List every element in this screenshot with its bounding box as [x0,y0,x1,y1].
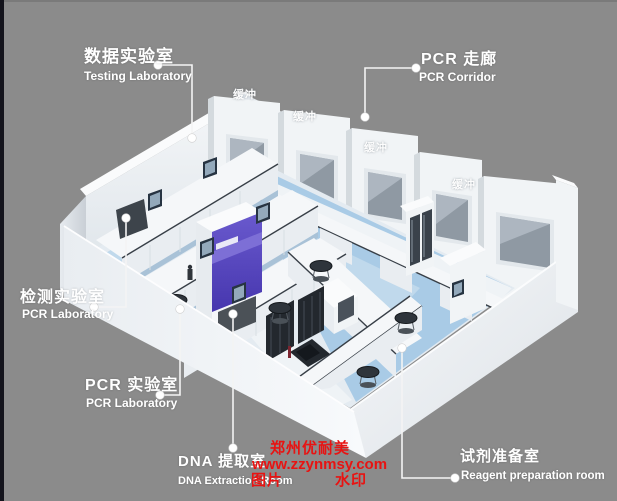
person-figure [188,265,193,280]
label-reagent-prep-en: Reagent preparation room [461,471,605,483]
left-border-strip [0,0,4,501]
buffer-tag-1: 缓冲 [233,86,257,102]
lab-floorplan-scene: 数据实验室 Testing Laboratory PCR 走廊 PCR Corr… [0,0,617,501]
label-pcr-corridor-zh: PCR 走廊 [421,52,497,68]
label-testing-lab-zh: 数据实验室 [84,48,174,65]
label-pcr-corridor-en: PCR Corridor [419,71,496,83]
label-pcr-lab-zh: PCR 实验室 [85,378,178,394]
buffer-tag-3: 缓冲 [364,139,388,155]
label-pcr-lab-en: PCR Laboratory [86,397,177,409]
label-testing-lab-en: Testing Laboratory [84,70,192,82]
buffer-tag-4: 缓冲 [452,176,476,192]
buffer-tag-2: 缓冲 [293,108,317,124]
watermark-company: 郑州优耐美 [270,441,350,456]
watermark-url: www.zzynmsy.com [252,457,387,472]
label-inspection-lab-en: PCR Laboratory [22,308,113,320]
label-reagent-prep-zh: 试剂准备室 [460,449,540,464]
watermark-tag-right: 水印 [335,473,367,488]
watermark-tag-left: 图片 [251,473,283,488]
label-inspection-lab-zh: 检测实验室 [20,290,105,306]
east-corner-column [556,180,578,310]
